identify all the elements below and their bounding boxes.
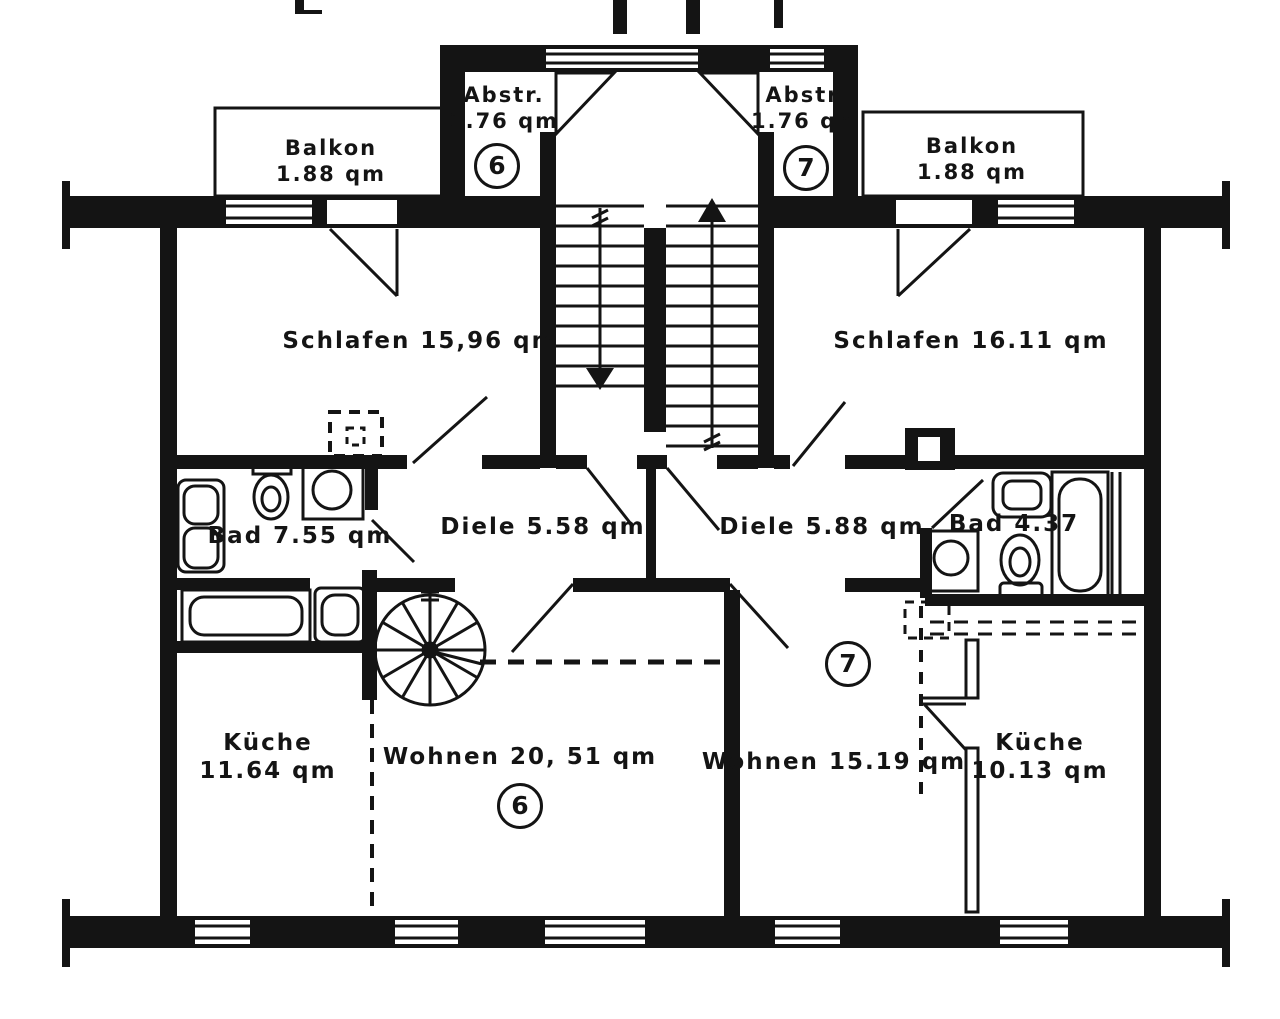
room-label-schlafen-left: Schlafen 15,96 qm [282,327,557,355]
room-label-bad-right: Bad 4.37 [949,510,1079,538]
wohnen-left-door [512,584,573,652]
washing-machine-right [926,531,978,591]
schlafen-right-door [793,402,845,466]
toilet-right [1000,535,1042,599]
apartment-number-6-abstell: 6 [474,143,520,189]
room-label-bad-left: Bad 7.55 qm [208,522,393,550]
toilet-left [253,461,291,519]
balcony-door-right [898,229,970,296]
room-label-balkon-right: Balkon 1.88 qm [917,133,1027,185]
apartment-7-entry-door [667,468,719,530]
room-label-wohnen-right: Wohnen 15.19 qm [702,748,966,776]
room-label-abstell-left: Abstr. 1.76 qm [449,82,559,134]
apartment-number-6-wohnen: 6 [497,783,543,829]
floor-plan-drawing [0,0,1280,1019]
room-label-kueche-right: Küche 10.13 qm [971,729,1108,785]
abstell-door-left [556,73,614,134]
bathtub-left [182,590,310,642]
apartment-number-7-abstell: 7 [783,145,829,191]
apartment-number-7-wohnen: 7 [825,641,871,687]
room-label-diele-right: Diele 5.88 qm [719,513,924,541]
room-label-schlafen-right: Schlafen 16.11 qm [833,327,1108,355]
spiral-stair [375,588,485,705]
abstell-door-right [700,73,758,134]
room-label-kueche-left: Küche 11.64 qm [199,729,336,785]
shaft-left-dashed [330,412,382,456]
sink-small-left [315,588,365,642]
room-label-balkon-left: Balkon 1.88 qm [276,135,386,187]
schlafen-left-door [413,397,487,463]
room-label-wohnen-left: Wohnen 20, 51 qm [383,743,657,771]
room-label-abstell-right: Abstr. 1.76 qm [751,82,861,134]
washing-machine-left [303,461,363,519]
kitchen-counter-dashed [930,622,1140,634]
room-label-diele-left: Diele 5.58 qm [440,513,645,541]
floor-plan-page: Balkon 1.88 qm Abstr. 1.76 qm Abstr. 1.7… [0,0,1280,1019]
walls [62,0,1230,967]
balcony-door-left [330,229,397,296]
kueche-right-door [924,704,966,750]
